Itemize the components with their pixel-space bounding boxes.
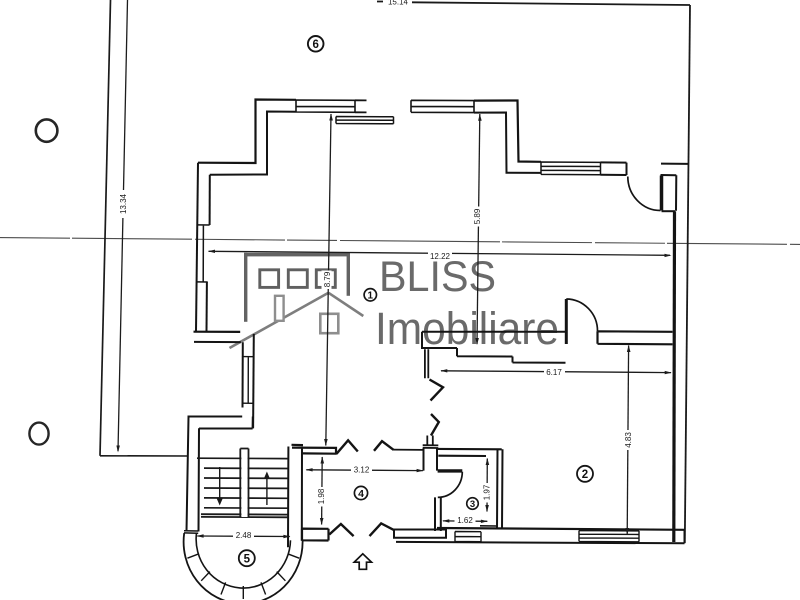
svg-text:1.97: 1.97 [483, 484, 492, 500]
svg-text:1.98: 1.98 [317, 488, 326, 504]
svg-text:Imobiliare: Imobiliare [375, 303, 559, 354]
svg-text:3.12: 3.12 [354, 466, 370, 475]
svg-text:1: 1 [368, 291, 374, 302]
svg-text:2.48: 2.48 [236, 531, 252, 540]
svg-text:6: 6 [312, 39, 318, 51]
svg-text:4.83: 4.83 [624, 432, 633, 448]
svg-text:8.79: 8.79 [323, 271, 332, 287]
svg-text:12.22: 12.22 [430, 252, 451, 261]
svg-text:5.89: 5.89 [473, 208, 482, 224]
svg-text:1.62: 1.62 [457, 516, 473, 525]
svg-text:13.34: 13.34 [119, 193, 128, 214]
svg-text:2: 2 [582, 469, 588, 481]
svg-text:4: 4 [358, 488, 364, 500]
svg-text:3: 3 [470, 499, 475, 510]
svg-text:5: 5 [244, 554, 251, 566]
svg-text:6.17: 6.17 [546, 368, 562, 377]
svg-text:15.14: 15.14 [388, 0, 409, 7]
